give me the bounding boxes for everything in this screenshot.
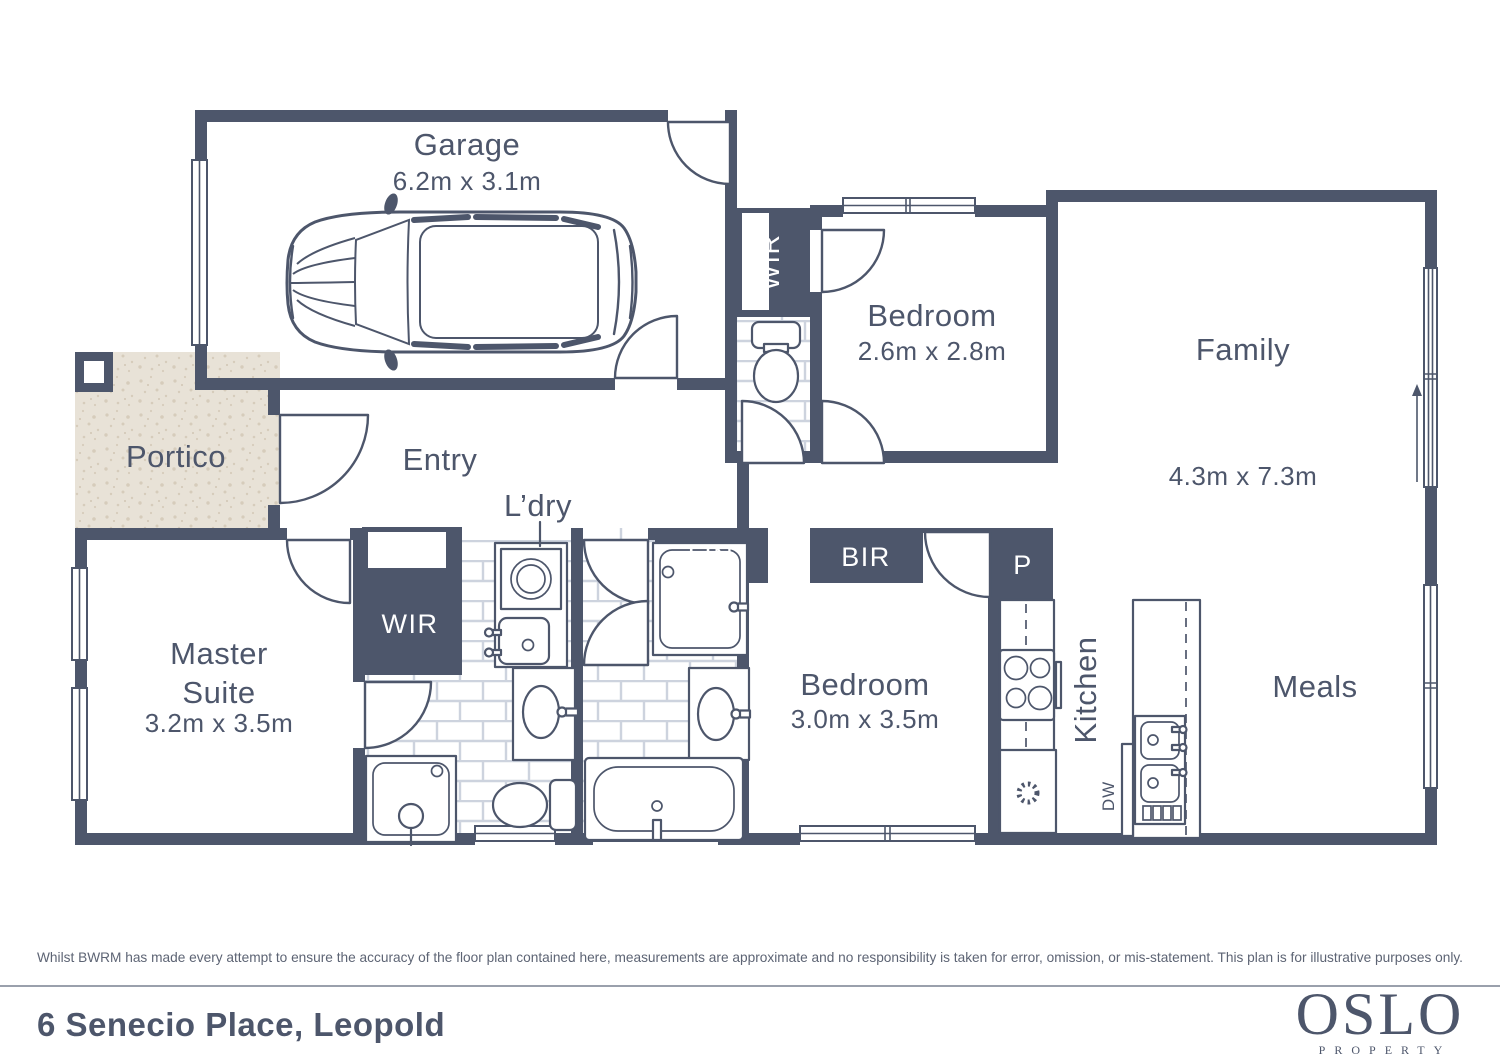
master-door bbox=[287, 540, 350, 603]
floor-plan-canvas: Garage 6.2m x 3.1m WIR Bedroom 2.6m x 2.… bbox=[0, 0, 1500, 1060]
ensuite-window bbox=[475, 826, 555, 841]
meals-window bbox=[1424, 585, 1437, 788]
label-dw: DW bbox=[1099, 781, 1118, 811]
label-kitchen: Kitchen bbox=[1068, 637, 1103, 744]
label-bedroom1-dims: 2.6m x 2.8m bbox=[858, 336, 1007, 366]
ensuite-vanity-icon bbox=[513, 668, 578, 760]
dishwasher-icon bbox=[1122, 744, 1133, 836]
kitchen-counter bbox=[1000, 600, 1061, 833]
island-bench bbox=[1122, 600, 1200, 838]
label-portico: Portico bbox=[126, 439, 226, 474]
ensuite-toilet-icon bbox=[493, 780, 576, 830]
floor-plan-page: Garage 6.2m x 3.1m WIR Bedroom 2.6m x 2.… bbox=[0, 0, 1500, 1060]
stove-icon bbox=[1000, 650, 1061, 720]
label-laundry: L’dry bbox=[504, 488, 572, 523]
bedroom2-door bbox=[925, 532, 990, 597]
label-garage: Garage bbox=[414, 127, 520, 162]
address-text: 6 Senecio Place, Leopold bbox=[37, 1006, 445, 1043]
label-wir-bedroom: WIR bbox=[755, 234, 785, 291]
label-wir-master: WIR bbox=[382, 609, 439, 639]
label-linen: LIN bbox=[688, 542, 735, 572]
master-window-1 bbox=[72, 568, 87, 660]
ensuite-shower-icon bbox=[366, 756, 456, 845]
oven-icon bbox=[1000, 750, 1056, 833]
bathtub-icon bbox=[585, 758, 743, 840]
label-entry: Entry bbox=[403, 442, 478, 477]
logo-subtitle: PROPERTY bbox=[1319, 1043, 1452, 1057]
bathroom-vanity-icon bbox=[689, 668, 750, 760]
toilet-icon bbox=[752, 322, 800, 402]
bedroom1-door bbox=[822, 401, 884, 463]
slider-arrow-icon bbox=[1412, 384, 1422, 396]
label-master-dims: 3.2m x 3.5m bbox=[145, 708, 294, 738]
kitchen-sink-icon bbox=[1135, 716, 1187, 824]
label-bir: BIR bbox=[841, 542, 891, 572]
bedroom2-window bbox=[800, 826, 975, 841]
front-door bbox=[280, 415, 368, 503]
logo-title: OSLO bbox=[1296, 981, 1465, 1047]
label-family-dims: 4.3m x 7.3m bbox=[1169, 461, 1318, 491]
label-meals: Meals bbox=[1272, 669, 1357, 704]
family-sliding-door bbox=[1412, 268, 1437, 487]
disclaimer-text: Whilst BWRM has made every attempt to en… bbox=[37, 949, 1463, 965]
label-master-2: Suite bbox=[182, 675, 255, 710]
car-icon bbox=[287, 192, 636, 373]
bedroom1-window bbox=[843, 198, 975, 213]
label-bedroom2-dims: 3.0m x 3.5m bbox=[791, 704, 940, 734]
wir-bedroom-door bbox=[822, 230, 884, 292]
label-garage-dims: 6.2m x 3.1m bbox=[393, 166, 542, 196]
master-window-2 bbox=[72, 688, 87, 800]
label-bedroom2: Bedroom bbox=[800, 667, 929, 702]
label-bedroom1: Bedroom bbox=[867, 298, 996, 333]
garage-window bbox=[192, 160, 207, 345]
label-master-1: Master bbox=[170, 636, 268, 671]
label-pantry: P bbox=[1013, 550, 1033, 580]
footer: Whilst BWRM has made every attempt to en… bbox=[0, 949, 1500, 1057]
oslo-logo: OSLO PROPERTY bbox=[1296, 981, 1465, 1057]
garage-rear-door bbox=[668, 122, 730, 184]
label-family: Family bbox=[1196, 332, 1290, 367]
